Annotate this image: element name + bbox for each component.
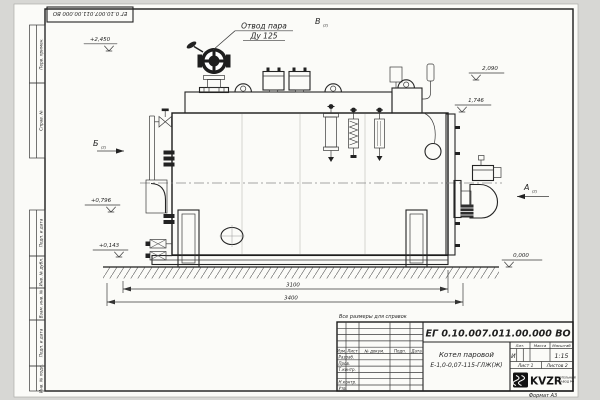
margin-label: Взам. инв. № bbox=[38, 289, 43, 318]
margin-label: Подп. и дата bbox=[38, 328, 43, 357]
elevation-value: +2,450 bbox=[90, 37, 111, 43]
view-b-ref: (2) bbox=[101, 146, 107, 150]
lit-value: И bbox=[511, 353, 516, 360]
col-doc: № докум. bbox=[364, 348, 385, 353]
elevation-value: 0,000 bbox=[513, 253, 529, 259]
margin-label: Инв. № дубл. bbox=[38, 258, 43, 287]
product-name-line2: Е-1,0-0,07-115-ГЛЖ(Ж) bbox=[430, 362, 502, 369]
logo-subtext-2: ЗАВОД РФ bbox=[559, 380, 575, 384]
callout-line2: Ду 125 bbox=[250, 31, 278, 40]
rotated-doc-number: ЕГ 0.10.007.011.00.000 ВО bbox=[52, 10, 127, 16]
reference-note: Все размеры для справок bbox=[339, 314, 407, 320]
row-nkontr: Н.контр. bbox=[339, 380, 357, 385]
dimension-value: 3100 bbox=[286, 283, 300, 289]
sheets-total: Листов 2 bbox=[546, 363, 568, 369]
sheet-number: Лист 1 bbox=[517, 363, 534, 369]
row-utv: Утв. bbox=[339, 386, 347, 391]
col-podp: Подп. bbox=[394, 348, 406, 353]
margin-label: Подп. и дата bbox=[38, 218, 43, 247]
view-a-label: А bbox=[523, 183, 529, 192]
col-data: Дата bbox=[410, 348, 422, 353]
margin-label: Инв. № подл. bbox=[38, 364, 43, 393]
burner-gearbox bbox=[461, 205, 474, 218]
format-note: Формат А3 bbox=[529, 393, 557, 399]
col-izm: Изм. bbox=[337, 348, 346, 353]
lit-header: Лит. bbox=[515, 343, 525, 348]
elevation-value: +0,143 bbox=[99, 243, 120, 249]
view-v-label: В bbox=[315, 17, 321, 26]
row-razrab: Разраб. bbox=[339, 355, 355, 360]
elevation-value: +0,796 bbox=[91, 198, 112, 204]
mass-header: Масса bbox=[534, 343, 547, 348]
doc-number: ЕГ 0.10.007.011.00.000 ВО bbox=[425, 329, 570, 340]
view-b-label: Б bbox=[93, 139, 99, 148]
view-a-ref: (2) bbox=[532, 190, 538, 194]
elevation-value: 1,746 bbox=[468, 98, 484, 104]
scale-header: Масштаб bbox=[552, 343, 571, 348]
view-v-ref: (2) bbox=[323, 24, 329, 28]
col-list: Лист bbox=[346, 348, 358, 353]
scale-value: 1:15 bbox=[555, 353, 569, 360]
callout-line1: Отвод пара bbox=[241, 22, 287, 31]
row-prov: Пров. bbox=[339, 361, 351, 366]
scanned-drawing-page: Перв. примен. Справ. № Подп. и дата Инв.… bbox=[0, 0, 600, 400]
row-tkontr: Т.контр. bbox=[339, 367, 356, 372]
margin-label: Справ. № bbox=[38, 110, 43, 131]
dimension-value: 3400 bbox=[284, 296, 298, 302]
flanged-nozzle-upper bbox=[164, 151, 175, 167]
drawing-sheet: Перв. примен. Справ. № Подп. и дата Инв.… bbox=[0, 0, 600, 400]
ground bbox=[103, 267, 499, 279]
elevation-value: 2,090 bbox=[482, 66, 498, 72]
product-name-line1: Котел паровой bbox=[439, 351, 494, 359]
ground-hatch bbox=[103, 268, 499, 279]
margin-label: Перв. примен. bbox=[38, 38, 43, 69]
